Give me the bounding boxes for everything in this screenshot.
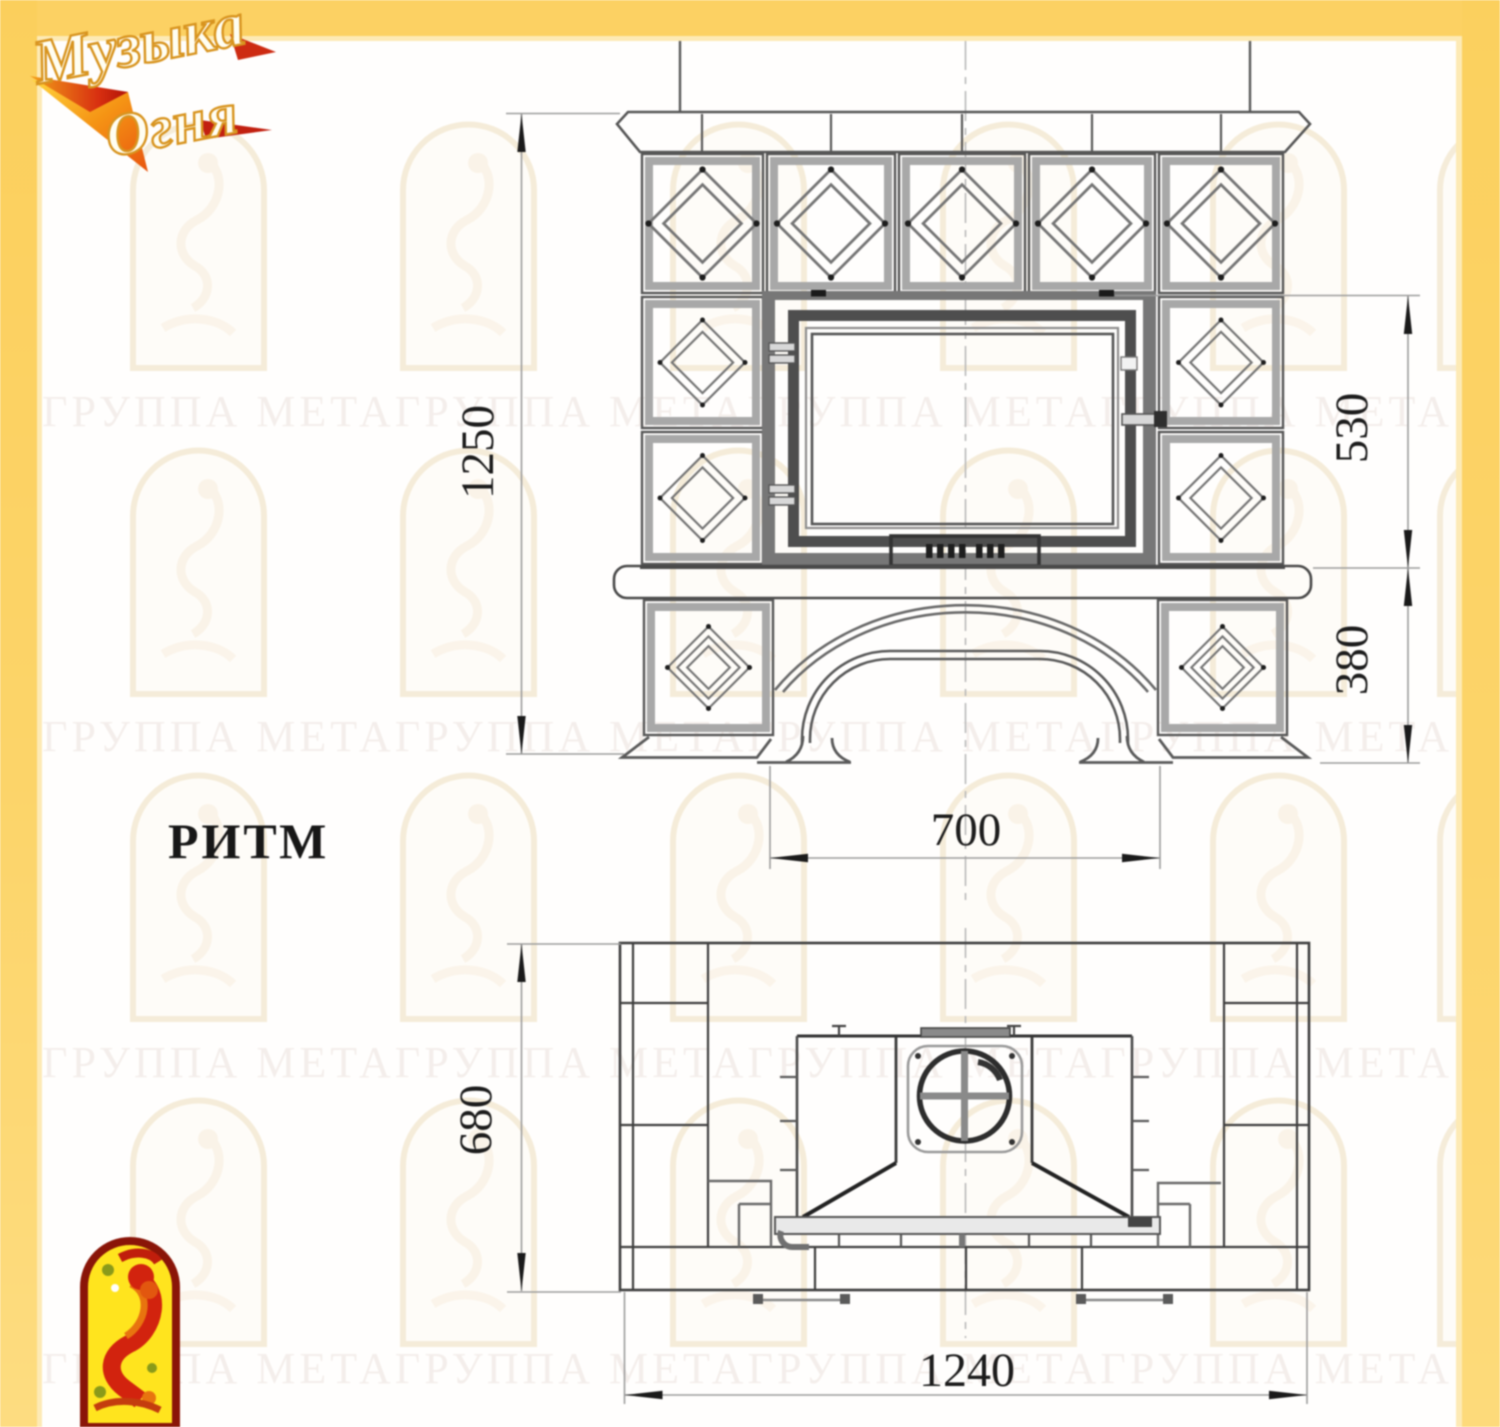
svg-text:ГРУППА МЕТАГРУППА МЕТАГРУППА М: ГРУППА МЕТАГРУППА МЕТАГРУППА МЕТАГРУППА … [42,1344,1453,1393]
svg-text:1240: 1240 [919,1344,1015,1397]
svg-text:ГРУППА МЕТАГРУППА МЕТАГРУППА М: ГРУППА МЕТАГРУППА МЕТАГРУППА МЕТАГРУППА … [42,1038,1453,1087]
svg-text:680: 680 [450,1085,502,1156]
svg-text:380: 380 [1326,625,1378,696]
svg-text:ГРУППА МЕТАГРУППА МЕТАГРУППА М: ГРУППА МЕТАГРУППА МЕТАГРУППА МЕТАГРУППА … [42,712,1453,761]
svg-text:1250: 1250 [452,405,504,499]
svg-text:700: 700 [931,804,1002,856]
svg-text:530: 530 [1326,393,1378,464]
svg-text:РИТМ: РИТМ [168,813,329,869]
